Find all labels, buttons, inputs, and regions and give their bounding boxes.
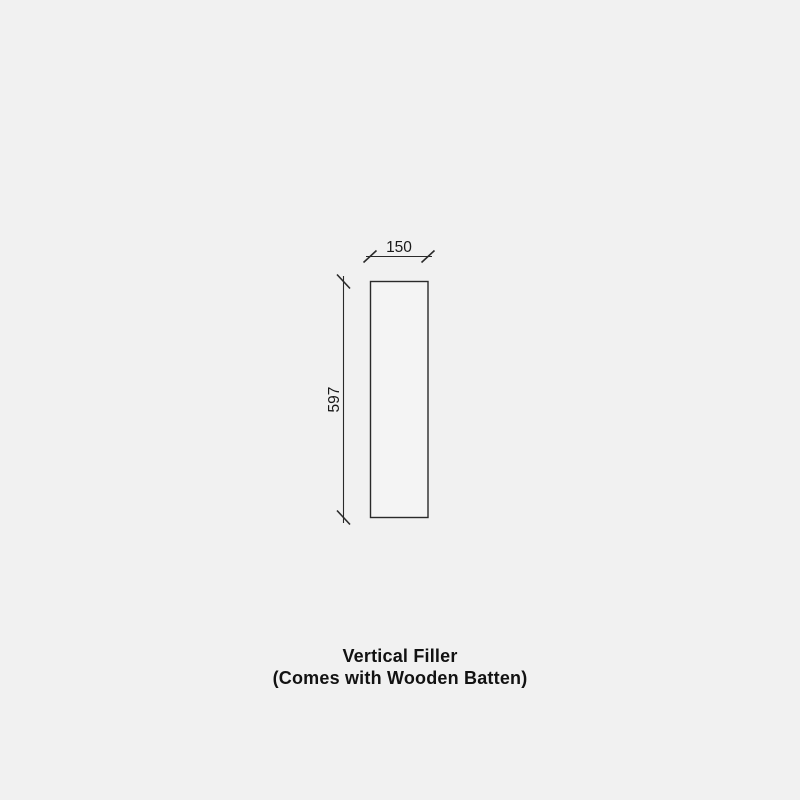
caption-title: Vertical Filler <box>0 645 800 667</box>
caption-subtitle: (Comes with Wooden Batten) <box>0 667 800 689</box>
filler-panel-outline <box>371 282 429 518</box>
product-dimension-diagram: 150 597 Vertical Filler (Comes with Wood… <box>0 0 800 800</box>
width-dimension-label: 150 <box>386 239 412 256</box>
height-dimension-label: 597 <box>326 387 343 413</box>
caption: Vertical Filler (Comes with Wooden Batte… <box>0 645 800 689</box>
